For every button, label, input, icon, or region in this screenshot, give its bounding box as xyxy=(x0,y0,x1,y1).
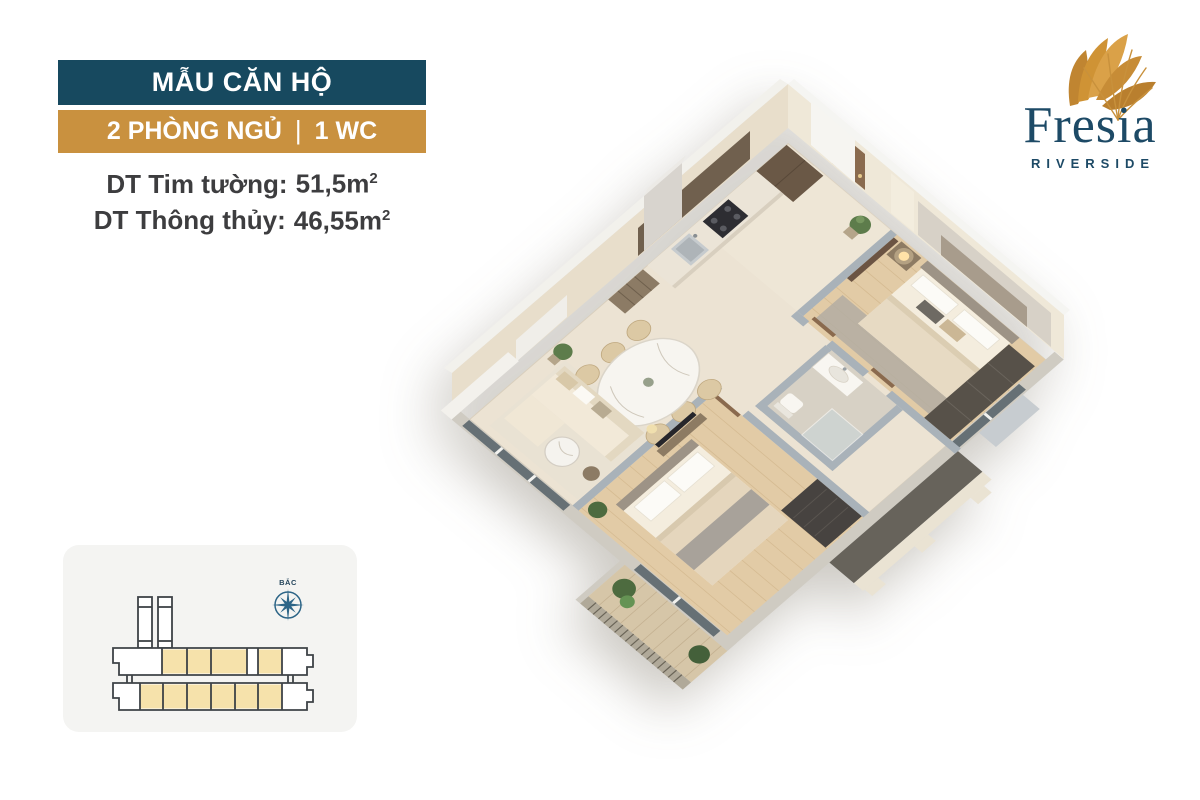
floorplan-3d xyxy=(420,78,1100,738)
title-text: MẪU CĂN HỘ xyxy=(152,67,333,98)
subtitle-right: 1 WC xyxy=(315,117,378,146)
spec-label: DT Thông thủy: xyxy=(94,205,286,235)
subtitle-banner: 2 PHÒNG NGỦ | 1 WC xyxy=(58,110,426,153)
tower-blocks xyxy=(138,597,172,648)
compass-label: BẮC xyxy=(279,578,297,587)
siteplan-card: BẮC xyxy=(63,545,357,732)
siteplan-diagram: BẮC xyxy=(63,545,357,732)
spec-line-net: DT Thông thủy:46,55m2 xyxy=(58,200,426,237)
subtitle-separator: | xyxy=(295,115,302,146)
spec-sup: 2 xyxy=(369,170,377,187)
building-bar-top xyxy=(113,648,313,675)
building-bar-bottom xyxy=(113,683,313,710)
spec-value: 51,5m xyxy=(296,169,370,199)
bar-connectors xyxy=(127,675,293,683)
spec-line-gross: DT Tim tường:51,5m2 xyxy=(58,163,426,200)
brochure-page: MẪU CĂN HỘ 2 PHÒNG NGỦ | 1 WC DT Tim tườ… xyxy=(0,0,1200,800)
area-specs: DT Tim tường:51,5m2 DT Thông thủy:46,55m… xyxy=(58,163,426,236)
plan xyxy=(420,119,1100,724)
spec-label: DT Tim tường: xyxy=(106,169,287,199)
spec-value: 46,55m xyxy=(294,205,382,235)
spec-sup: 2 xyxy=(382,207,390,224)
title-banner: MẪU CĂN HỘ xyxy=(58,60,426,105)
compass-rose-icon: BẮC xyxy=(272,578,304,621)
subtitle-left: 2 PHÒNG NGỦ xyxy=(107,117,282,146)
